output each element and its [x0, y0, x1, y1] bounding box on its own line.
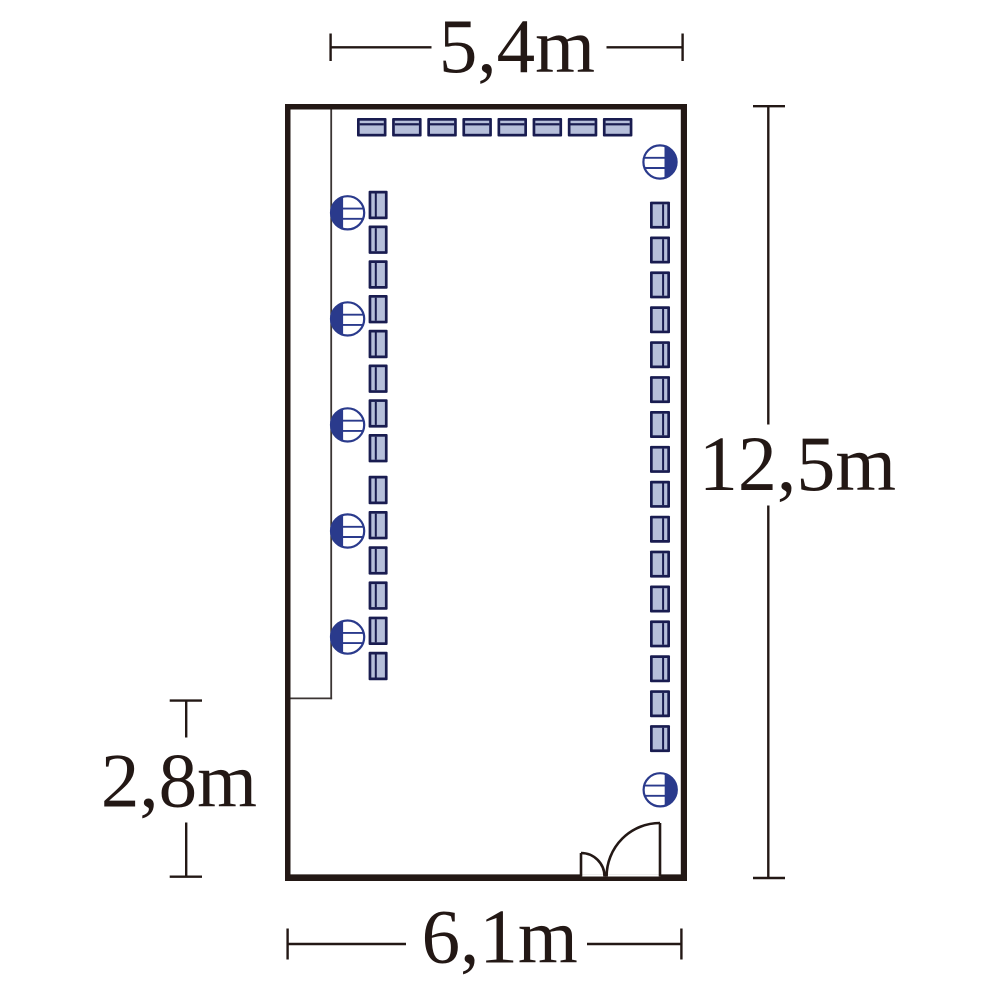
svg-text:2,8m: 2,8m: [101, 738, 257, 824]
svg-text:5,4m: 5,4m: [439, 3, 595, 89]
svg-text:12,5m: 12,5m: [699, 420, 896, 507]
svg-text:6,1m: 6,1m: [422, 894, 578, 980]
